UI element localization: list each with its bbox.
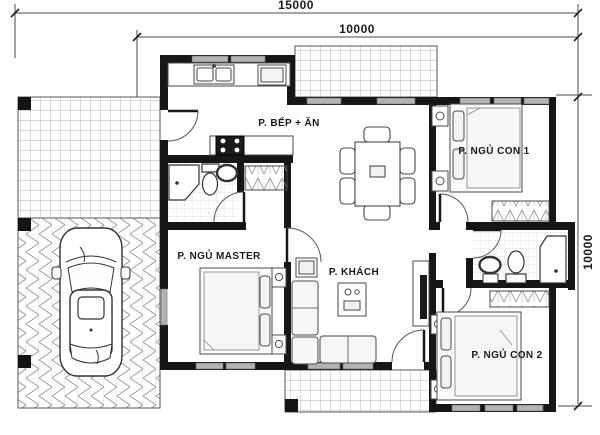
car bbox=[52, 228, 130, 376]
window-icon bbox=[524, 98, 549, 104]
label-living-room: P. KHÁCH bbox=[329, 265, 379, 278]
window-icon bbox=[196, 363, 223, 369]
tv-icon bbox=[420, 275, 427, 319]
dim-total-width: 15000 bbox=[278, 0, 314, 12]
dining-chair bbox=[364, 127, 390, 142]
dim-depth: 10000 bbox=[581, 234, 595, 270]
coffee-table-icon bbox=[338, 283, 366, 316]
floor-plan-drawing: 15000 10000 10000 P. BẾP + ĂN P. NGỦ CON… bbox=[0, 0, 600, 435]
sink-icon bbox=[194, 64, 234, 84]
dining-chair bbox=[340, 148, 355, 174]
column-icon bbox=[18, 97, 31, 110]
dining-chair bbox=[400, 178, 415, 204]
window-icon bbox=[517, 405, 543, 411]
wardrobe-icon bbox=[492, 201, 549, 221]
window-icon bbox=[161, 289, 167, 325]
label-bedroom2: P. NGỦ CON 2 bbox=[471, 348, 542, 361]
nightstand-icon bbox=[272, 268, 286, 287]
window-icon bbox=[343, 363, 373, 369]
nightstand-icon bbox=[272, 335, 286, 354]
dining-set bbox=[340, 127, 415, 220]
column-icon bbox=[18, 218, 31, 231]
label-kitchen-dining: P. BẾP + ĂN bbox=[258, 116, 320, 129]
window-icon bbox=[192, 56, 228, 62]
window-icon bbox=[485, 405, 513, 411]
toilet-icon bbox=[202, 164, 219, 195]
window-icon bbox=[460, 98, 490, 104]
door-kitchen-side bbox=[168, 111, 198, 141]
bedroom1-furniture bbox=[432, 104, 549, 221]
window-icon bbox=[377, 98, 415, 104]
door-bedroom1 bbox=[440, 194, 468, 222]
wardrobe-icon bbox=[245, 166, 287, 190]
window-icon bbox=[231, 56, 265, 62]
door-master-bedroom bbox=[287, 228, 321, 262]
dining-chair bbox=[340, 178, 355, 204]
fridge-icon bbox=[258, 65, 286, 85]
dining-chair bbox=[364, 205, 390, 220]
label-bedroom1: P. NGỦ CON 1 bbox=[458, 144, 529, 157]
door-main-entry bbox=[392, 330, 424, 362]
label-master-bedroom: P. NGỦ MASTER bbox=[177, 249, 261, 262]
bedroom2-furniture bbox=[431, 291, 549, 400]
column-icon bbox=[18, 355, 31, 368]
porch-bottom bbox=[285, 370, 436, 412]
shower-icon bbox=[540, 236, 566, 283]
tv-cabinet-icon bbox=[413, 261, 429, 326]
window-icon bbox=[307, 98, 341, 104]
sink-icon bbox=[480, 257, 501, 273]
car-mirror-right bbox=[121, 267, 130, 279]
car-sunroof bbox=[78, 297, 104, 319]
column-icon bbox=[285, 399, 298, 412]
nightstand-icon bbox=[432, 106, 448, 126]
stove-icon bbox=[216, 136, 244, 155]
toilet-icon bbox=[506, 251, 526, 283]
patio-top-left bbox=[18, 97, 160, 218]
dim-main-width: 10000 bbox=[339, 22, 375, 36]
dining-chair bbox=[400, 148, 415, 174]
sink-icon bbox=[217, 165, 237, 181]
patio-top-right bbox=[295, 46, 437, 97]
window-icon bbox=[226, 363, 255, 369]
floor-plan: 15000 10000 10000 P. BẾP + ĂN P. NGỦ CON… bbox=[0, 0, 600, 435]
bed-icon bbox=[200, 268, 272, 354]
kitchen-fixtures bbox=[168, 63, 293, 155]
nightstand-icon bbox=[432, 171, 448, 191]
side-table-icon bbox=[296, 258, 317, 277]
window-icon bbox=[452, 405, 480, 411]
wardrobe-icon bbox=[490, 291, 549, 307]
car-mirror-left bbox=[52, 267, 61, 279]
window-icon bbox=[494, 98, 521, 104]
